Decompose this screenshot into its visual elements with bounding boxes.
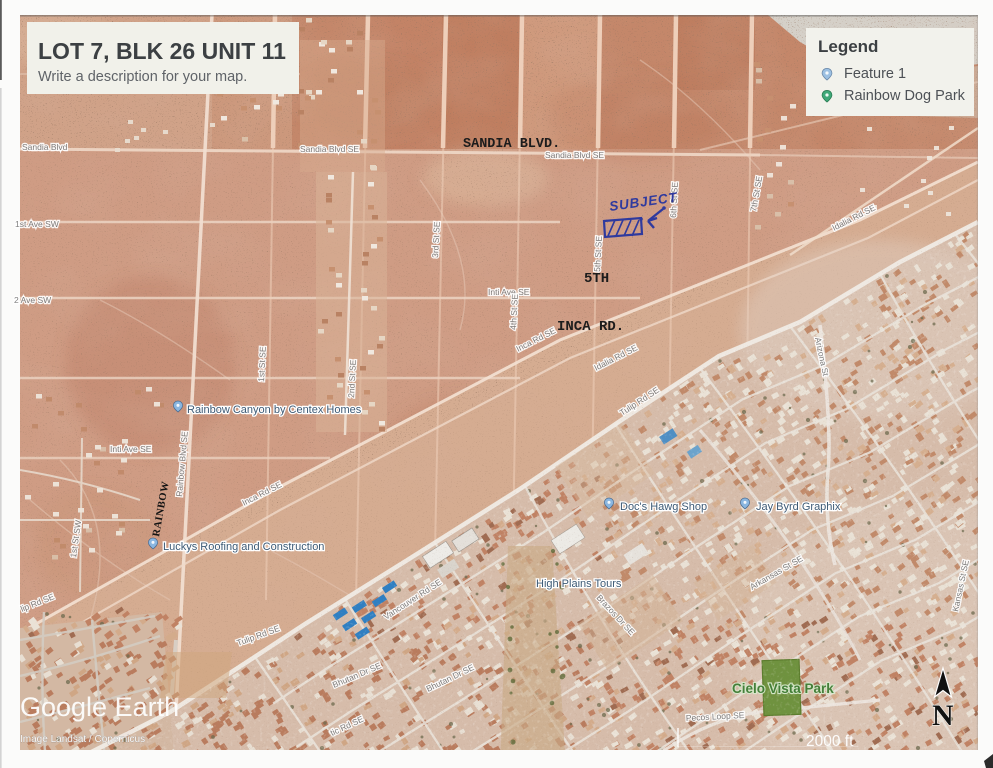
svg-text:Inti Ave SE: Inti Ave SE	[110, 444, 152, 454]
svg-text:5th St SE: 5th St SE	[592, 235, 604, 272]
svg-text:2 Ave SW: 2 Ave SW	[14, 295, 51, 305]
svg-text:2nd St SE: 2nd St SE	[346, 359, 358, 398]
svg-text:Jay Byrd Graphix: Jay Byrd Graphix	[756, 501, 841, 513]
svg-text:Sandia Blvd: Sandia Blvd	[22, 142, 68, 152]
svg-text:1st Ave SW: 1st Ave SW	[15, 219, 59, 229]
svg-text:Write a description for your m: Write a description for your map.	[38, 69, 247, 85]
svg-text:High Plains Tours: High Plains Tours	[536, 578, 622, 590]
svg-text:5TH: 5TH	[584, 271, 609, 287]
svg-text:SANDIA BLVD.: SANDIA BLVD.	[463, 137, 560, 152]
svg-text:Rainbow Dog Park: Rainbow Dog Park	[844, 88, 966, 104]
svg-text:2000 ft: 2000 ft	[806, 733, 854, 750]
svg-text:4th St SE: 4th St SE	[508, 293, 520, 330]
svg-text:Google Earth: Google Earth	[20, 692, 179, 722]
svg-text:3rd St SE: 3rd St SE	[430, 221, 442, 258]
svg-text:N: N	[932, 699, 954, 732]
svg-text:Image Landsat / Copernicus: Image Landsat / Copernicus	[20, 734, 145, 745]
svg-text:LOT 7, BLK 26 UNIT 11: LOT 7, BLK 26 UNIT 11	[38, 38, 286, 64]
svg-text:Feature 1: Feature 1	[844, 66, 906, 82]
svg-text:INCA RD.: INCA RD.	[557, 319, 624, 335]
svg-text:Legend: Legend	[818, 37, 878, 56]
svg-text:Cielo Vista Park: Cielo Vista Park	[732, 681, 834, 696]
svg-text:Luckys Roofing and Constructio: Luckys Roofing and Construction	[163, 541, 324, 553]
svg-text:Doc's Hawg Shop: Doc's Hawg Shop	[620, 501, 707, 513]
svg-text:Sandia Blvd SE: Sandia Blvd SE	[300, 144, 359, 154]
svg-text:Rainbow Canyon by Centex Homes: Rainbow Canyon by Centex Homes	[187, 404, 362, 416]
svg-text:1st St SE: 1st St SE	[256, 346, 268, 382]
